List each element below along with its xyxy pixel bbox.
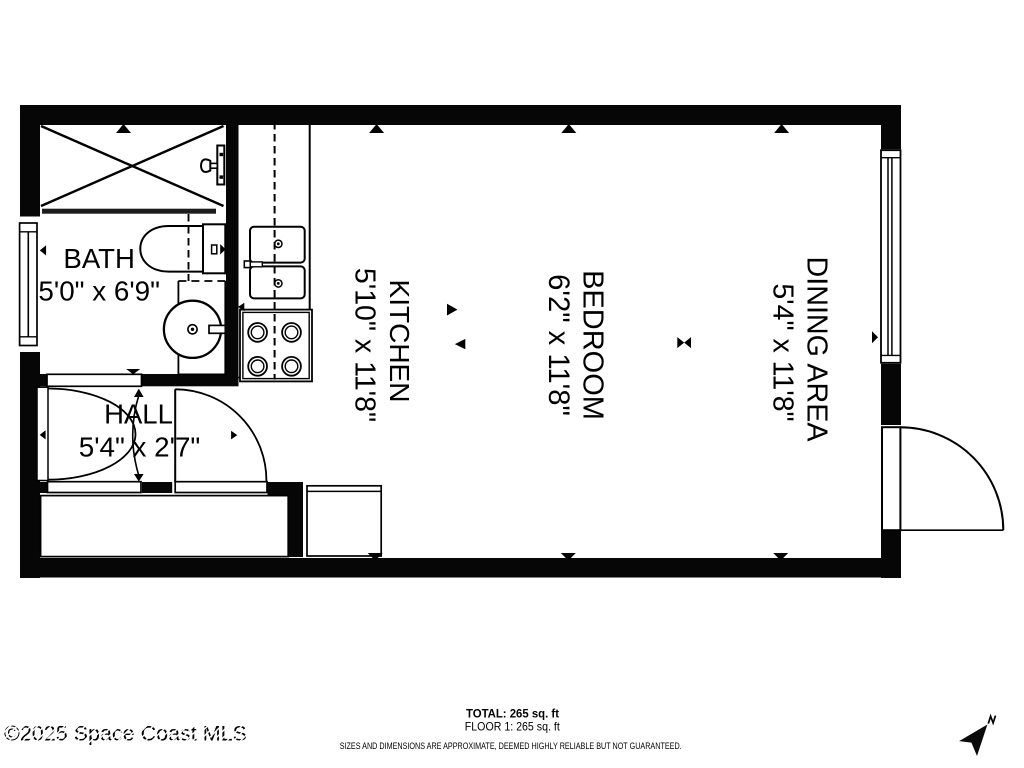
svg-text:FLOOR 1: 265 sq. ft: FLOOR 1: 265 sq. ft [465, 720, 561, 733]
svg-text:5'10" x 11'8": 5'10" x 11'8" [349, 268, 381, 422]
svg-text:5'4" x 11'8": 5'4" x 11'8" [767, 283, 799, 421]
svg-text:HALL: HALL [104, 398, 173, 429]
svg-text:BATH: BATH [63, 243, 135, 274]
svg-text:KITCHEN: KITCHEN [384, 280, 415, 403]
svg-text:DINING AREA: DINING AREA [801, 257, 833, 443]
svg-text:BEDROOM: BEDROOM [577, 270, 609, 420]
svg-text:SIZES AND DIMENSIONS ARE APPRO: SIZES AND DIMENSIONS ARE APPROXIMATE, DE… [340, 741, 682, 751]
svg-text:6'2" x 11'8": 6'2" x 11'8" [542, 274, 574, 416]
svg-text:TOTAL: 265 sq. ft: TOTAL: 265 sq. ft [466, 708, 559, 721]
svg-text:5'4" x 2'7": 5'4" x 2'7" [79, 432, 201, 463]
svg-text:5'0" x 6'9": 5'0" x 6'9" [38, 276, 160, 307]
